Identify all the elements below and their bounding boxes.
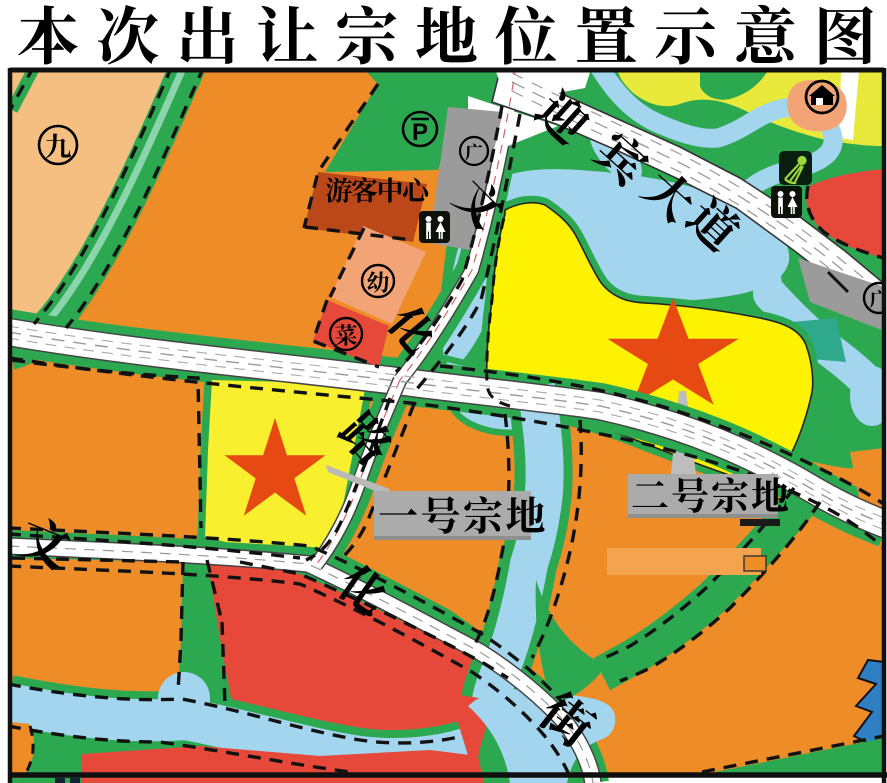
svg-text:P: P (412, 119, 428, 146)
